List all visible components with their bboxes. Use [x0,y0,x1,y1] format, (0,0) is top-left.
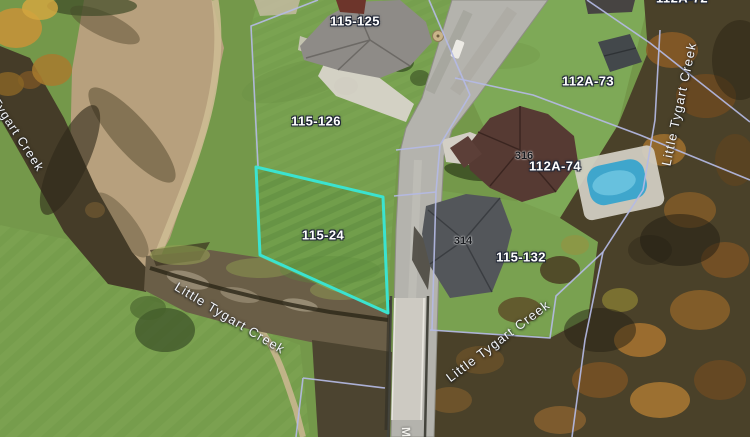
parcel-label-112A-72: 112A-72 [656,0,708,6]
gravel-circle-top-left [254,0,300,16]
parcel-label-115-132: 115-132 [496,250,546,265]
address-label-316: 316 [515,150,533,162]
road-marking-label: M [399,427,413,437]
house-top-edge [585,0,635,14]
map-canvas[interactable]: 115-125 115-126 112A-73 112A-74 115-24 1… [0,0,750,437]
parcel-label-115-126: 115-126 [291,114,341,129]
parcel-label-115-24: 115-24 [302,228,344,243]
parcel-label-112A-73: 112A-73 [562,74,614,89]
roof-section-red [336,0,366,14]
aerial-basemap [0,0,750,437]
address-label-314: 314 [454,235,472,247]
parcel-label-112A-74: 112A-74 [529,159,581,174]
parcel-label-115-125: 115-125 [330,14,380,29]
